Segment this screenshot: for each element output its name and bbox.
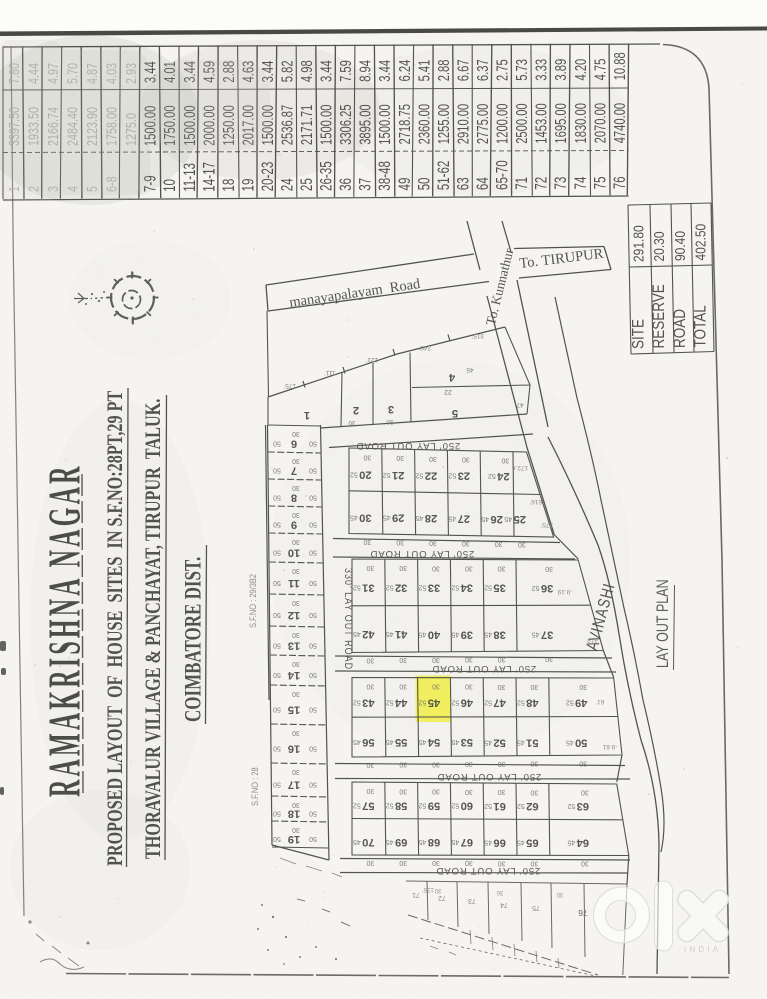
svg-text:INDIA: INDIA — [684, 945, 721, 954]
